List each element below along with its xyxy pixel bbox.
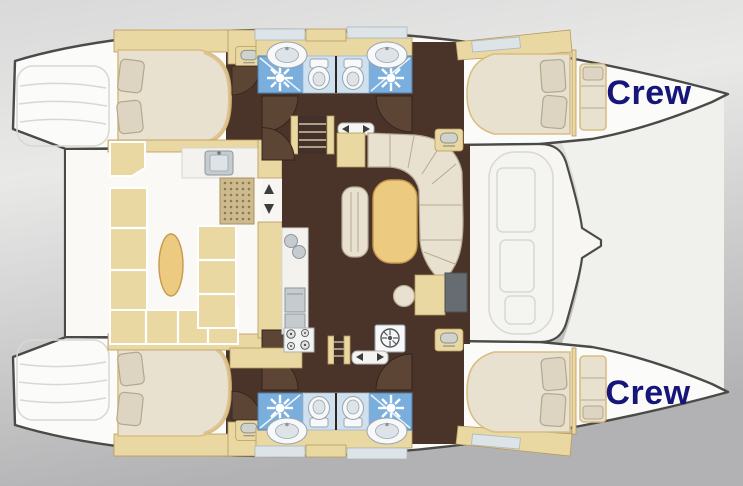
saloon-table	[373, 180, 417, 263]
steps-top	[291, 116, 334, 154]
pillow	[116, 100, 143, 134]
floor-grate	[220, 178, 254, 224]
galley-sink	[285, 235, 298, 248]
pillow	[541, 357, 568, 391]
floor-plan-canvas: Crew Crew	[0, 0, 743, 486]
toilet-icon	[309, 397, 330, 428]
burner-icon	[287, 330, 295, 338]
toilet-icon	[309, 59, 330, 90]
galley-sink	[293, 246, 306, 259]
cockpit	[66, 140, 282, 350]
hatch-slider-bottom	[352, 351, 388, 364]
aft-cabin-top-shelf	[114, 30, 232, 52]
crew-label-top: Crew	[606, 74, 691, 112]
crew-cabin-top	[580, 64, 606, 130]
steps-bottom	[328, 336, 350, 364]
crew-cabin-bottom	[580, 356, 606, 422]
cockpit-table	[159, 234, 183, 296]
burner-icon	[301, 341, 309, 349]
deck-locker	[306, 445, 346, 457]
washing-machine-icon	[375, 325, 405, 352]
pillow	[117, 59, 145, 94]
bench-corner-cushion	[110, 142, 145, 176]
foredeck-seating	[489, 152, 553, 334]
bathrooms-top	[256, 38, 412, 93]
pillow	[540, 59, 566, 93]
burner-icon	[301, 329, 308, 336]
deck-hatch-icon	[435, 129, 463, 151]
pillow	[116, 392, 143, 426]
fridge	[285, 288, 305, 312]
pillow	[540, 393, 566, 427]
deck-locker	[306, 29, 346, 41]
pillow	[541, 95, 568, 129]
saloon-chair	[342, 187, 368, 257]
catamaran-floor-plan: Crew Crew	[0, 0, 743, 486]
crew-bulkhead	[572, 348, 576, 434]
sink-icon	[267, 42, 307, 68]
bench-left	[110, 188, 147, 314]
hull-window	[347, 448, 407, 459]
hull-window	[255, 446, 305, 457]
bench-middle	[198, 226, 236, 328]
sink-icon	[367, 42, 407, 68]
toilet-icon	[343, 397, 364, 428]
aft-cabin-bottom-shelf	[114, 434, 232, 456]
hull-window	[255, 29, 305, 40]
crew-bulkhead	[572, 50, 576, 136]
pillow	[117, 352, 145, 387]
saloon-cabinet-top	[337, 133, 365, 167]
galley-cabinet-lower	[258, 222, 282, 338]
hull-window	[347, 27, 407, 38]
nav-desk	[445, 273, 467, 312]
burner-icon	[287, 342, 294, 349]
toilet-icon	[343, 59, 364, 90]
deck-hatch-icon	[435, 329, 463, 351]
sink-icon	[367, 418, 407, 444]
stool	[394, 286, 415, 307]
bathrooms-bottom	[256, 393, 412, 448]
nav-cabinet	[415, 275, 445, 315]
sink-icon	[267, 418, 307, 444]
crew-label-bottom: Crew	[605, 374, 690, 412]
